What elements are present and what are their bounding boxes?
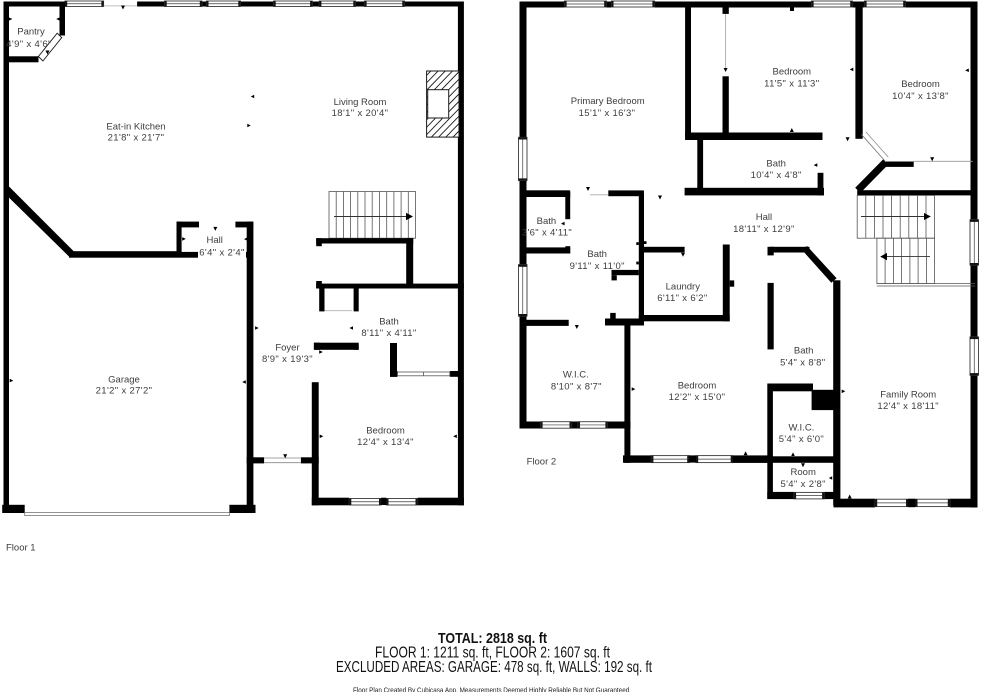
- svg-text:Bedroom: Bedroom: [773, 67, 812, 78]
- svg-text:5'4" x 6'0": 5'4" x 6'0": [779, 434, 824, 445]
- svg-text:Floor 2: Floor 2: [527, 457, 557, 468]
- svg-text:Bath: Bath: [794, 346, 814, 357]
- svg-text:Garage: Garage: [108, 374, 140, 385]
- svg-text:18'11" x 12'9": 18'11" x 12'9": [733, 224, 795, 235]
- svg-text:5'4" x 2'8": 5'4" x 2'8": [781, 479, 826, 490]
- svg-text:Bath: Bath: [587, 249, 607, 260]
- svg-text:18'1" x 20'4": 18'1" x 20'4": [332, 108, 389, 119]
- svg-text:6'11" x 6'2": 6'11" x 6'2": [657, 293, 707, 304]
- svg-text:Eat-in Kitchen: Eat-in Kitchen: [106, 122, 165, 133]
- svg-text:9'11" x 11'0": 9'11" x 11'0": [570, 261, 625, 272]
- svg-text:Room: Room: [791, 467, 816, 478]
- svg-text:Bedroom: Bedroom: [366, 426, 405, 437]
- svg-text:12'4" x 13'4": 12'4" x 13'4": [357, 437, 414, 448]
- svg-text:Foyer: Foyer: [275, 343, 299, 354]
- svg-text:3'6" x 4'11": 3'6" x 4'11": [522, 228, 572, 239]
- svg-text:Bath: Bath: [379, 317, 399, 328]
- svg-text:Pantry: Pantry: [17, 27, 45, 38]
- svg-text:21'2" x 27'2": 21'2" x 27'2": [96, 386, 153, 397]
- svg-text:Bath: Bath: [537, 216, 557, 227]
- svg-text:Floor Plan Created By Cubicasa: Floor Plan Created By Cubicasa App. Meas…: [353, 685, 631, 692]
- svg-text:15'1" x 16'3": 15'1" x 16'3": [579, 108, 636, 119]
- svg-text:4'9" x 4'6": 4'9" x 4'6": [6, 39, 51, 50]
- svg-text:Primary Bedroom: Primary Bedroom: [571, 96, 645, 107]
- svg-text:8'9" x 19'3": 8'9" x 19'3": [262, 354, 313, 365]
- svg-text:Hall: Hall: [207, 235, 223, 246]
- svg-text:21'8" x 21'7": 21'8" x 21'7": [108, 133, 165, 144]
- svg-text:Laundry: Laundry: [666, 281, 701, 292]
- svg-text:W.I.C.: W.I.C.: [788, 423, 814, 434]
- svg-text:Bedroom: Bedroom: [678, 380, 717, 391]
- svg-text:W.I.C.: W.I.C.: [563, 370, 589, 381]
- svg-text:11'5" x 11'3": 11'5" x 11'3": [764, 78, 819, 89]
- svg-text:Bedroom: Bedroom: [901, 79, 940, 90]
- svg-text:12'2" x 15'0": 12'2" x 15'0": [669, 392, 726, 403]
- svg-text:5'4" x 8'8": 5'4" x 8'8": [780, 358, 825, 369]
- svg-text:Family Room: Family Room: [880, 389, 936, 400]
- svg-text:Floor 1: Floor 1: [6, 543, 36, 554]
- svg-text:8'11" x 4'11": 8'11" x 4'11": [361, 328, 416, 339]
- svg-text:Bath: Bath: [766, 158, 786, 169]
- svg-text:Living Room: Living Room: [334, 97, 387, 108]
- svg-text:10'4" x 4'8": 10'4" x 4'8": [751, 170, 802, 181]
- svg-text:6'4" x 2'4": 6'4" x 2'4": [199, 248, 244, 259]
- svg-text:Hall: Hall: [756, 212, 772, 223]
- svg-text:12'4" x 18'11": 12'4" x 18'11": [877, 401, 939, 412]
- svg-text:EXCLUDED AREAS: GARAGE: 478 sq: EXCLUDED AREAS: GARAGE: 478 sq. ft, WALL…: [336, 659, 652, 676]
- svg-text:10'4" x 13'8": 10'4" x 13'8": [892, 91, 949, 102]
- svg-text:8'10" x 8'7": 8'10" x 8'7": [551, 381, 602, 392]
